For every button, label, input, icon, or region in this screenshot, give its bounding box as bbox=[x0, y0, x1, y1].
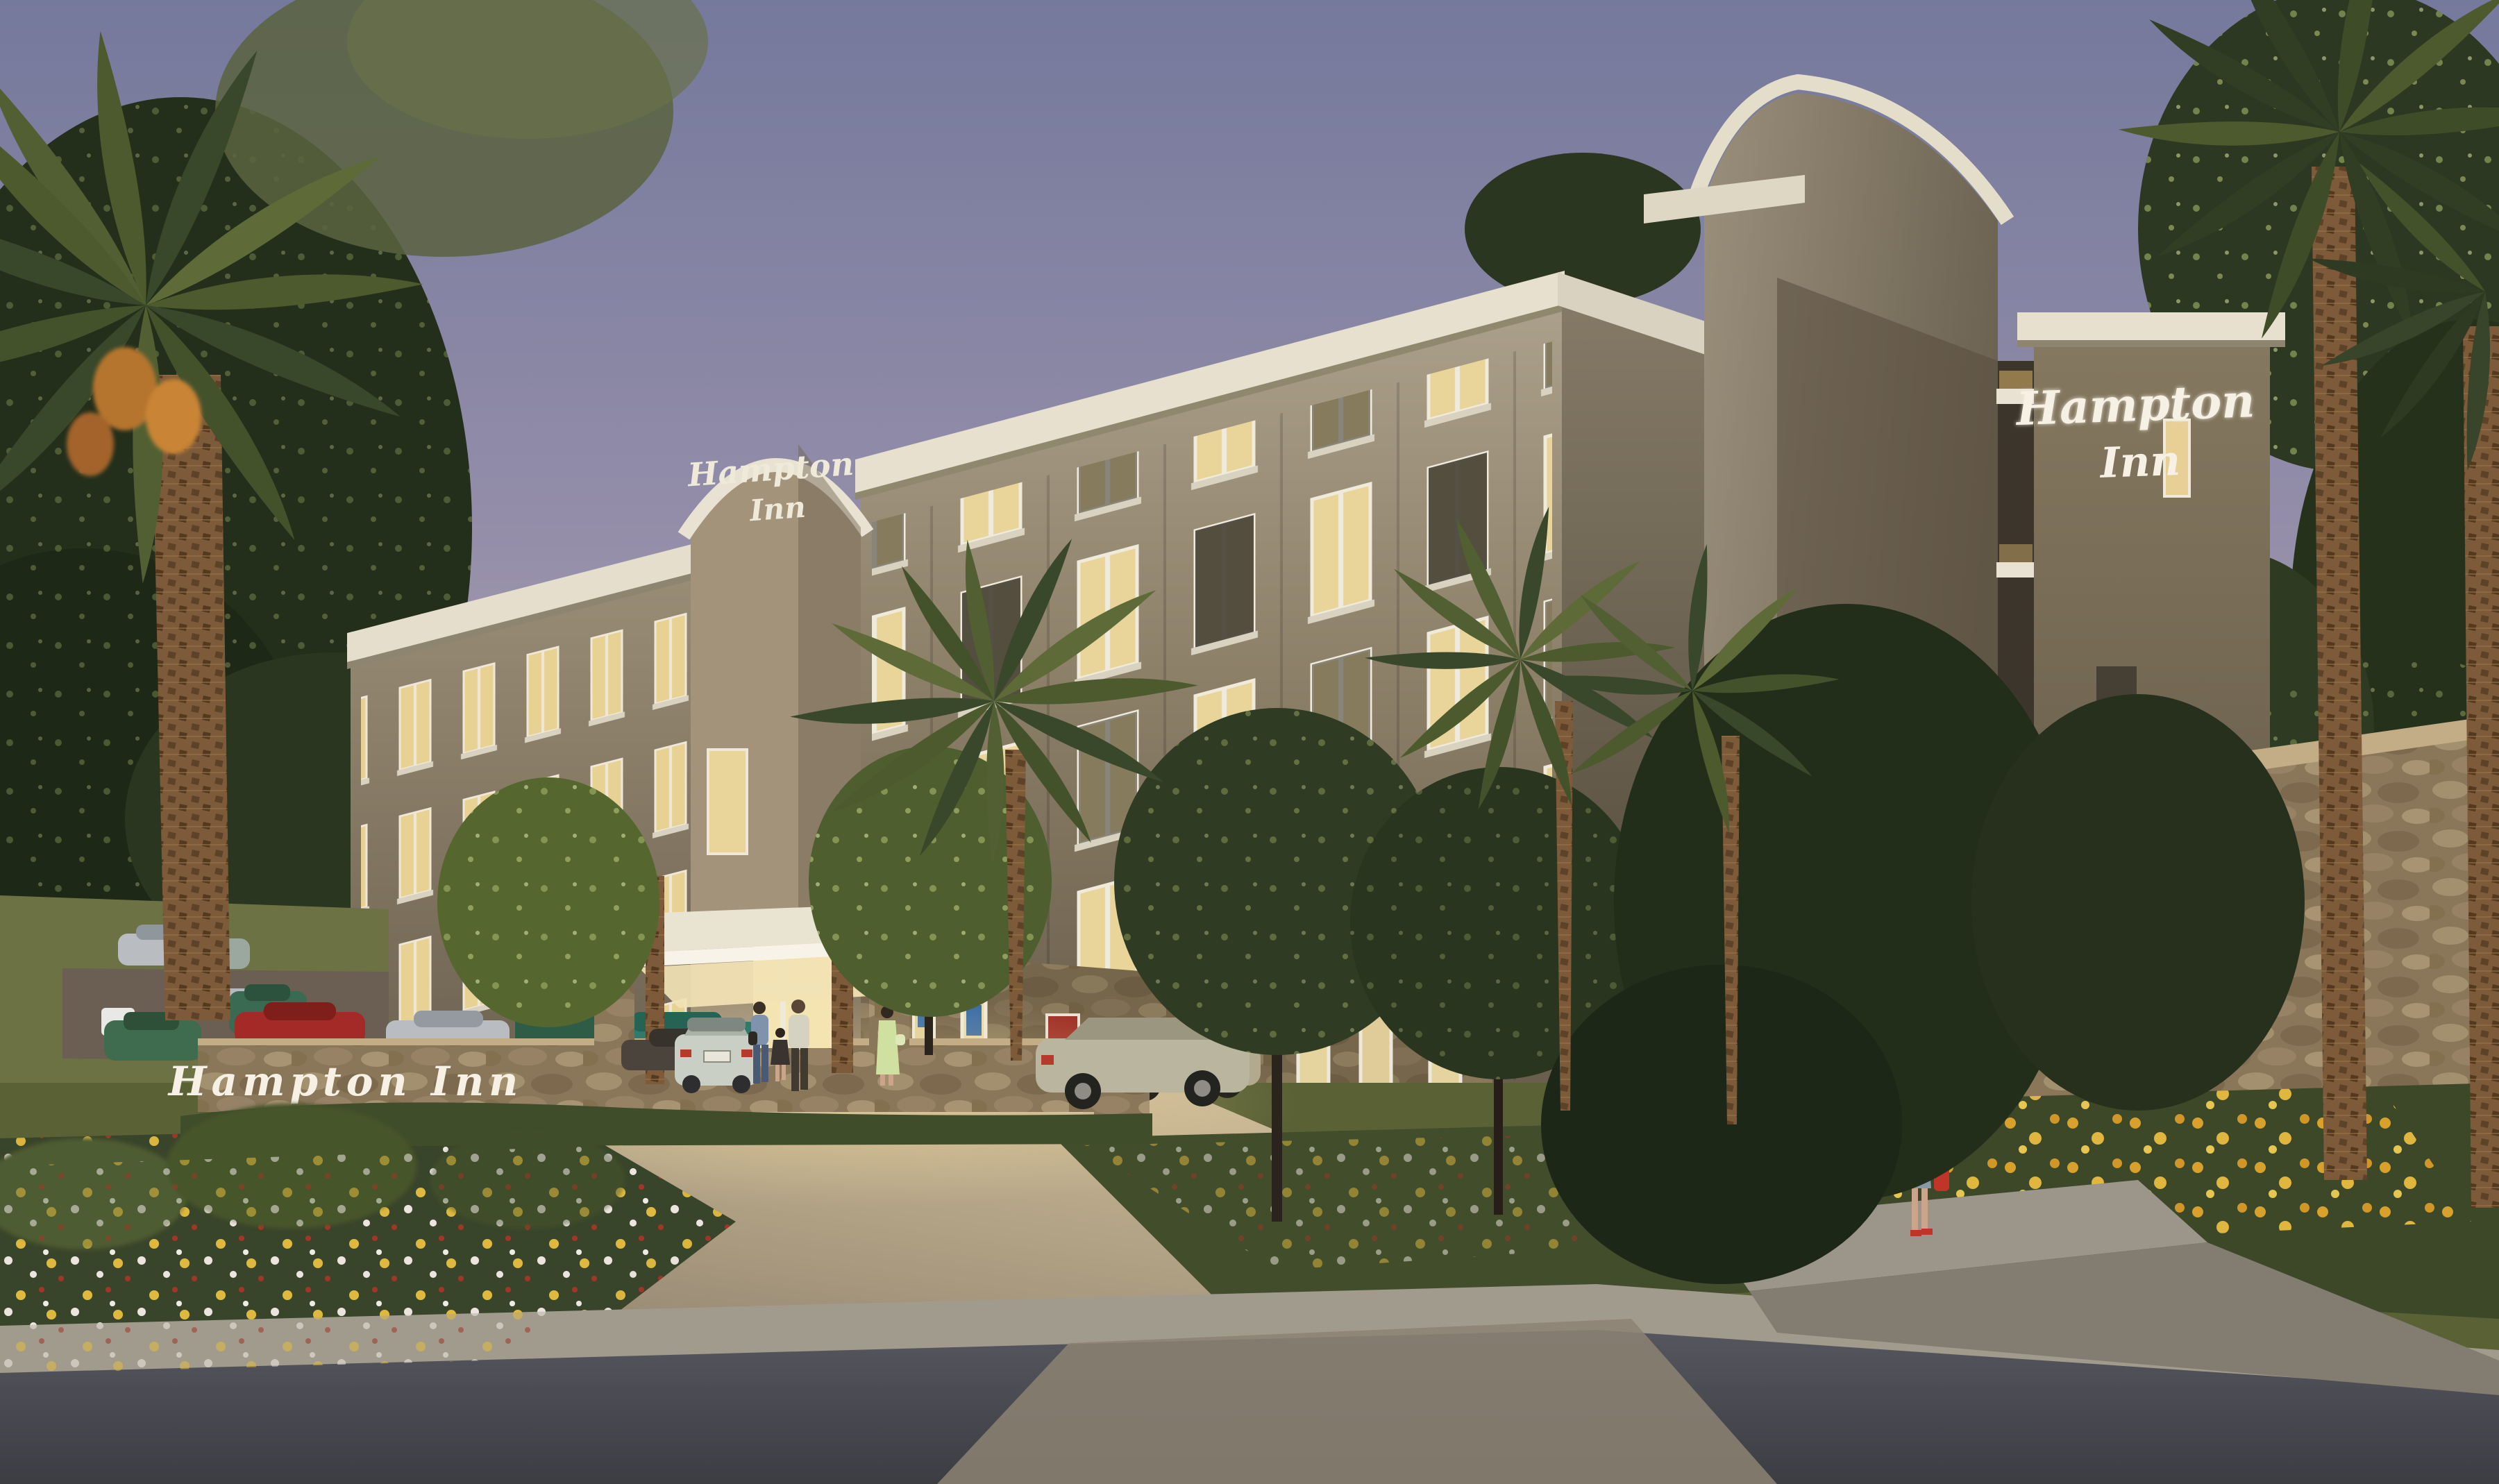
bright-tree-left-of-canopy bbox=[437, 777, 659, 1027]
taillight bbox=[741, 1049, 752, 1057]
monument-sign-text: Hampton Inn bbox=[167, 1058, 523, 1105]
entrance-sign-line2: Inn bbox=[748, 490, 807, 528]
tower-sign-line2: Inn bbox=[2098, 437, 2181, 488]
tower-sign-line1: Hampton bbox=[2014, 373, 2255, 436]
rendering-canvas: Hampton Hampton Inn Hampton Inn bbox=[0, 0, 2499, 1484]
license-plate bbox=[704, 1051, 730, 1062]
hotel-dusk-rendering: Hampton Hampton Inn Hampton Inn bbox=[0, 0, 2499, 1484]
taillight bbox=[1041, 1055, 1054, 1065]
dark-tree-mass bbox=[1541, 965, 1902, 1284]
taillight bbox=[680, 1049, 691, 1057]
dark-tree-right bbox=[1971, 694, 2305, 1111]
shoulder-bag bbox=[748, 1031, 757, 1045]
handbag bbox=[895, 1034, 905, 1045]
sign-tower-cornice bbox=[2017, 312, 2285, 340]
entrance-tower-window bbox=[708, 750, 747, 854]
